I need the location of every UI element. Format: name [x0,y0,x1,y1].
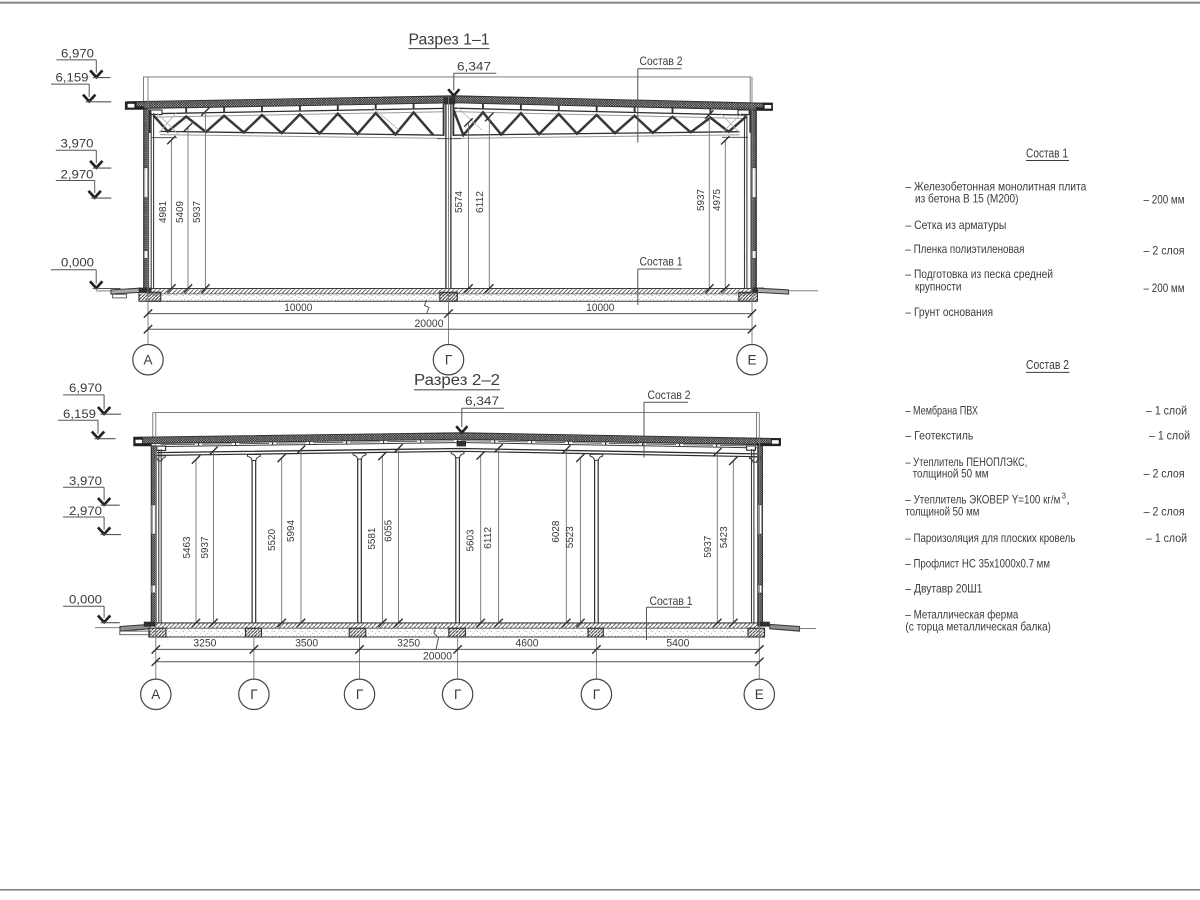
svg-text:5937: 5937 [200,536,211,558]
svg-text:2,970: 2,970 [61,168,94,182]
svg-text:толщиной 50 мм: толщиной 50 мм [905,505,979,519]
svg-text:(с торца металлическая балка): (с торца металлическая балка) [905,620,1051,634]
svg-text:Состав 2: Состав 2 [1026,358,1069,372]
svg-text:– 1 слой: – 1 слой [1146,404,1187,418]
svg-text:5400: 5400 [666,638,689,650]
svg-text:6,347: 6,347 [465,394,499,408]
svg-text:3250: 3250 [193,638,216,650]
svg-text:– 2 слоя: – 2 слоя [1144,467,1185,481]
svg-text:20000: 20000 [415,318,444,330]
svg-text:– Геотекстиль: – Геотекстиль [905,429,973,443]
svg-text:5603: 5603 [466,529,477,551]
svg-text:5463: 5463 [182,536,193,558]
svg-text:0,000: 0,000 [69,592,102,606]
svg-text:5520: 5520 [267,529,278,551]
svg-text:крупности: крупности [915,280,962,294]
svg-text:4600: 4600 [516,638,539,650]
svg-text:Г: Г [593,687,601,702]
svg-text:Г: Г [454,687,462,702]
svg-text:6028: 6028 [551,520,562,542]
svg-text:6112: 6112 [475,191,486,213]
svg-text:6112: 6112 [483,526,494,548]
svg-text:Г: Г [445,353,453,368]
svg-text:5409: 5409 [175,201,186,223]
svg-text:10000: 10000 [586,302,614,314]
svg-text:– Сетка из арматуры: – Сетка из арматуры [905,218,1006,232]
svg-text:Состав 1: Состав 1 [1026,147,1068,161]
svg-text:6,347: 6,347 [457,60,491,74]
svg-text:– 1 слой: – 1 слой [1146,531,1187,545]
svg-text:2,970: 2,970 [69,504,102,518]
svg-text:3,970: 3,970 [69,474,102,488]
svg-text:– Двутавр 20Ш1: – Двутавр 20Ш1 [905,582,982,596]
svg-text:10000: 10000 [284,302,312,314]
svg-text:– 1 слой: – 1 слой [1149,429,1190,443]
svg-text:,: , [1067,493,1070,507]
svg-text:– 200 мм: – 200 мм [1144,193,1185,207]
svg-text:А: А [143,353,152,368]
svg-text:Е: Е [755,687,764,702]
svg-text:5937: 5937 [696,189,707,211]
svg-text:– Грунт основания: – Грунт основания [905,305,993,319]
svg-text:Состав 1: Состав 1 [650,594,693,608]
svg-text:– 2 слоя: – 2 слоя [1144,505,1185,519]
svg-text:5574: 5574 [454,191,465,213]
svg-text:Состав 2: Состав 2 [648,388,691,402]
svg-text:Г: Г [250,687,258,702]
svg-text:3500: 3500 [295,638,318,650]
svg-text:6,970: 6,970 [69,381,102,395]
svg-text:3,970: 3,970 [61,137,94,151]
svg-text:4981: 4981 [158,201,169,223]
svg-text:5523: 5523 [565,526,576,548]
svg-text:Состав 2: Состав 2 [640,54,683,68]
svg-text:6,159: 6,159 [63,407,96,421]
svg-text:5937: 5937 [703,535,714,557]
svg-text:– 2 слоя: – 2 слоя [1144,244,1185,258]
svg-text:толщиной 50 мм: толщиной 50 мм [913,467,989,481]
svg-text:– Мембрана ПВХ: – Мембрана ПВХ [905,404,978,418]
svg-text:5994: 5994 [286,520,297,542]
svg-text:– Пароизоляция для плоских кро: – Пароизоляция для плоских кровель [905,531,1075,545]
svg-text:Состав 1: Состав 1 [640,254,683,268]
svg-text:20000: 20000 [423,651,452,663]
svg-text:А: А [151,687,160,702]
svg-text:3250: 3250 [397,638,420,650]
svg-text:Разрез 2–2: Разрез 2–2 [414,372,500,389]
svg-text:5937: 5937 [192,201,203,223]
svg-text:Разрез 1–1: Разрез 1–1 [409,32,490,49]
svg-text:– Пленка полиэтиленовая: – Пленка полиэтиленовая [905,242,1024,256]
svg-text:– Профлист НС 35х1000х0.7 мм: – Профлист НС 35х1000х0.7 мм [905,557,1050,571]
svg-text:Г: Г [356,687,364,702]
svg-text:0,000: 0,000 [61,256,94,270]
svg-text:5581: 5581 [367,527,378,549]
svg-text:6,159: 6,159 [56,71,89,85]
svg-text:4975: 4975 [712,189,723,211]
svg-text:– 200 мм: – 200 мм [1144,281,1185,295]
svg-text:5423: 5423 [719,526,730,548]
svg-text:Е: Е [747,353,756,368]
svg-text:6,970: 6,970 [61,46,94,60]
svg-text:6055: 6055 [384,519,395,541]
svg-text:из бетона В 15 (М200): из бетона В 15 (М200) [915,192,1019,206]
